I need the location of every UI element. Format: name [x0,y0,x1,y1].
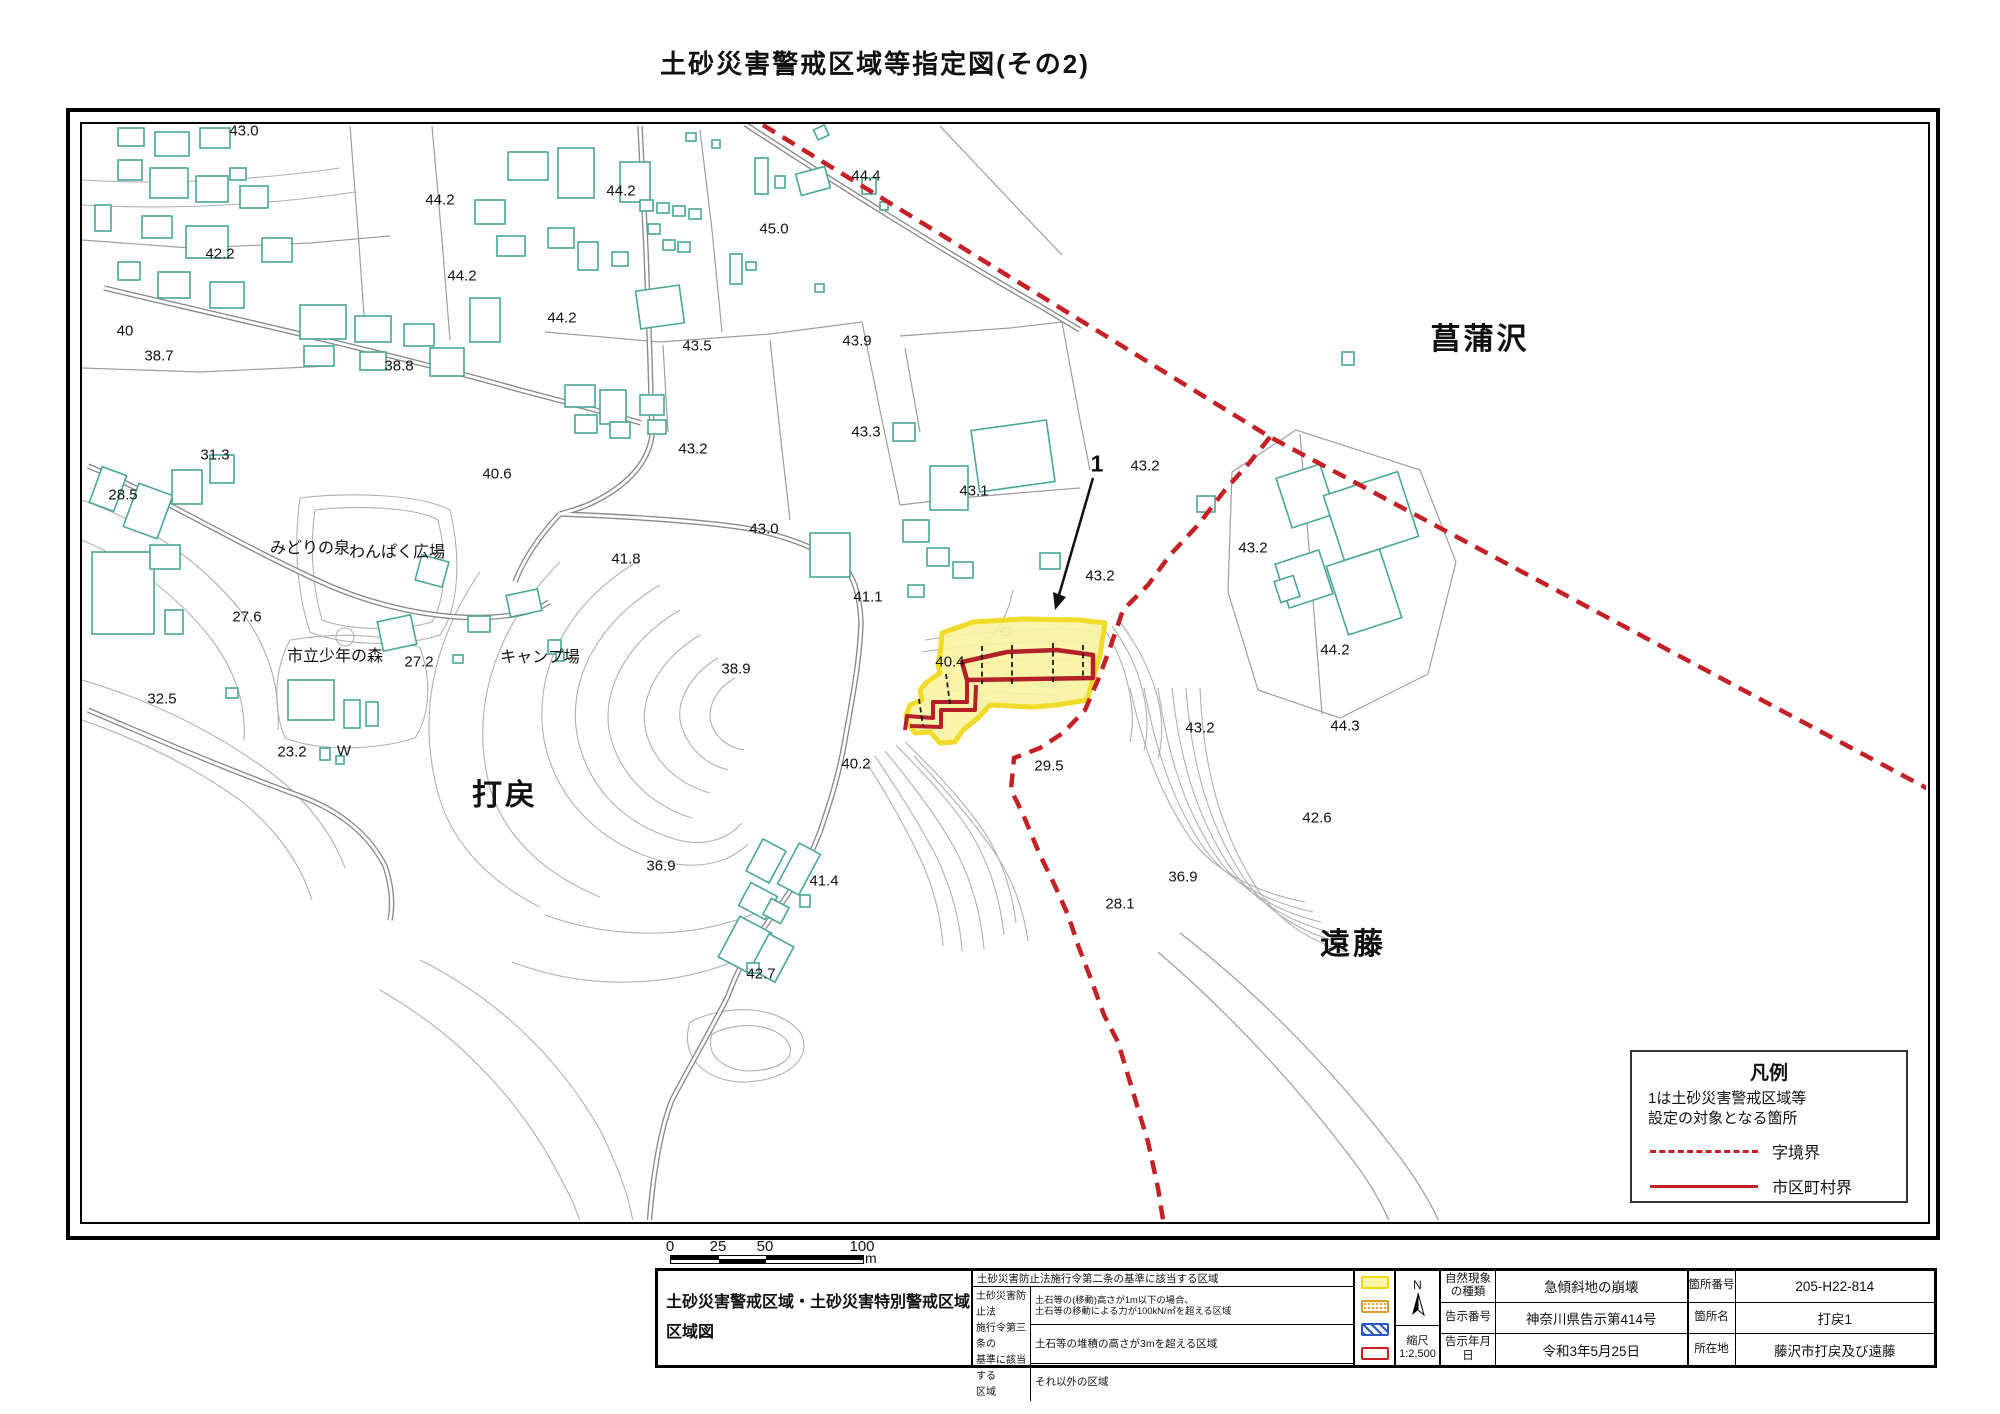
map-label-elevation: 44.2 [547,311,576,326]
map-label-elevation: 38.8 [384,359,413,374]
map-label-elevation: 28.1 [1105,897,1134,912]
map-label-elevation: 41.4 [809,874,838,889]
solid-line-icon [1650,1185,1758,1188]
map-label-elevation: 38.9 [721,662,750,677]
map-label-district: 打戻 [472,781,538,811]
compass-scale-cell: N 縮尺 1:2,500 [1396,1271,1441,1365]
map-label-elevation: 43.2 [1238,541,1267,556]
scale-segment [766,1256,863,1263]
scale-unit: m [865,1250,877,1266]
map-label-elevation: 42.7 [746,967,775,982]
location-table: 箇所番号 205-H22-814 箇所名 打戻1 所在地 藤沢市打戻及び遠藤 [1689,1271,1935,1365]
table-row: 箇所番号 205-H22-814 [1689,1271,1935,1303]
table-row: 告示年月日 令和3年5月25日 [1441,1334,1687,1365]
map-label-elevation: 43.3 [851,425,880,440]
legend-note-line1: 1は土砂災害警戒区域等 [1632,1089,1906,1109]
map-label-elevation: 43.1 [959,484,988,499]
notice-table: 自然現象の種類 急傾斜地の崩壊 告示番号 神奈川県告示第414号 告示年月日 令… [1441,1271,1689,1365]
zone-row-article2: 土砂災害防止法施行令第二条の基準に該当する区域 [973,1271,1353,1287]
table-row: 告示番号 神奈川県告示第414号 [1441,1303,1687,1335]
dashed-line-icon [1650,1150,1758,1153]
scale-ratio: 縮尺 1:2,500 [1399,1326,1436,1365]
map-label-elevation: 41.8 [611,552,640,567]
map-label-elevation: 38.7 [144,349,173,364]
map-label-elevation: 27.2 [404,655,433,670]
article3-label: 土砂災害防止法 施行令第三条の 基準に該当する 区域 [973,1287,1031,1401]
legend-title: 凡例 [1632,1058,1906,1085]
north-arrow-icon [1409,1291,1427,1317]
map-label-elevation: 45.0 [759,222,788,237]
scale-bar: 0 25 50 100 m [655,1238,895,1270]
map-label-elevation: 41.1 [853,590,882,605]
zone-category-table: 土砂災害防止法施行令第二条の基準に該当する区域 土砂災害防止法 施行令第三条の … [973,1271,1355,1365]
table-row: 自然現象の種類 急傾斜地の崩壊 [1441,1271,1687,1303]
map-label-zone-number: 1 [1091,453,1104,476]
map-label-elevation: 27.6 [232,610,261,625]
map-label-elevation: 42.6 [1302,811,1331,826]
legend-note-line2: 設定の対象となる箇所 [1632,1109,1906,1129]
map-label-poi: 市立少年の森 [287,649,383,665]
zone-row-accumulation: 土石等の堆積の高さが3mを超える区域 [1031,1325,1353,1363]
map-label-elevation: 44.2 [606,184,635,199]
map-label-elevation: 32.5 [147,692,176,707]
zone-color-swatches [1355,1271,1396,1365]
map-label-elevation: 36.9 [646,859,675,874]
north-indicator: N [1396,1271,1439,1326]
map-label-elevation: 44.4 [851,169,880,184]
table-row: 所在地 藤沢市打戻及び遠藤 [1689,1334,1935,1365]
scale-segment [719,1256,766,1263]
map-label-elevation: 42.2 [205,247,234,262]
map-label-elevation: 40.2 [841,757,870,772]
blue-zone-swatch [1361,1323,1389,1336]
map-label-elevation: 43.2 [678,442,707,457]
map-label-elevation: 36.9 [1168,870,1197,885]
map-label-elevation: 43.0 [749,522,778,537]
map-label-elevation: 29.5 [1034,759,1063,774]
legend-box: 凡例 1は土砂災害警戒区域等 設定の対象となる箇所 字境界 市区町村界 [1630,1050,1908,1203]
map-label-elevation: 31.3 [200,448,229,463]
zone-row-movement: 土石等の(移動)高さが1m以下の場合、 土石等の移動による力が100kN/㎡を超… [1031,1287,1353,1325]
scale-tick: 50 [757,1238,774,1255]
map-sheet-title-cell: 土砂災害警戒区域・土砂災害特別警戒区域 区域図 [658,1271,973,1365]
map-label-elevation: 43.0 [229,124,258,139]
map-label-poi: わんぱく広場 [349,545,445,561]
map-label-elevation: 43.2 [1085,569,1114,584]
scale-segment [671,1256,719,1263]
map-label-elevation: 44.2 [425,193,454,208]
map-label-poi: みどりの泉 [270,541,350,557]
scale-tick: 25 [710,1238,727,1255]
map-label-elevation: 44.3 [1330,719,1359,734]
map-label-elevation: 23.2 [277,745,306,760]
hazard-map-sheet: 土砂災害警戒区域等指定図(その2) [0,0,2000,1414]
map-label-elevation: 44.2 [1320,643,1349,658]
scale-tick: 0 [666,1238,674,1255]
zone-row-other: それ以外の区域 [1031,1364,1353,1401]
map-label-district: 遠藤 [1320,930,1386,960]
map-label-elevation: 40.4 [935,655,964,670]
table-row: 箇所名 打戻1 [1689,1303,1935,1335]
zone-rows-article3: 土砂災害防止法 施行令第三条の 基準に該当する 区域 土石等の(移動)高さが1m… [973,1287,1353,1401]
map-label-elevation: 43.9 [842,334,871,349]
map-label-elevation: 43.2 [1185,721,1214,736]
map-label-district: 菖蒲沢 [1431,325,1530,355]
map-label-elevation: 43.5 [682,339,711,354]
info-table: 土砂災害警戒区域・土砂災害特別警戒区域 区域図 土砂災害防止法施行令第二条の基準… [655,1268,1937,1368]
legend-item-municipal-boundary: 市区町村界 [1632,1174,1906,1198]
scale-bar-segments [670,1255,864,1264]
legend-item-aza-boundary: 字境界 [1632,1139,1906,1163]
map-label-poi: キャンプ場 [500,650,580,666]
orange-zone-swatch [1361,1300,1389,1313]
map-label-elevation: 28.5 [108,488,137,503]
red-zone-swatch [1361,1347,1389,1360]
page-title: 土砂災害警戒区域等指定図(その2) [660,44,1090,81]
map-label-elevation: 40 [117,324,134,339]
map-label-elevation: W [337,744,351,759]
map-label-elevation: 44.2 [447,269,476,284]
yellow-zone-swatch [1361,1276,1389,1289]
map-label-elevation: 43.2 [1130,459,1159,474]
map-label-elevation: 40.6 [482,467,511,482]
